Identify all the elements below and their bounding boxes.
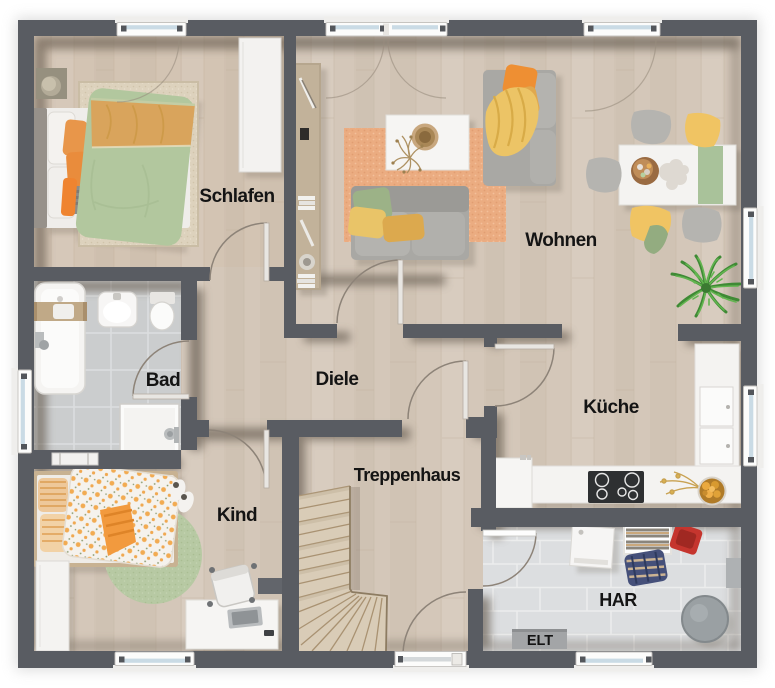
svg-text:Küche: Küche — [583, 397, 639, 418]
svg-text:HAR: HAR — [599, 590, 637, 610]
svg-text:Bad: Bad — [146, 370, 180, 391]
svg-text:ELT: ELT — [527, 633, 553, 649]
svg-text:Wohnen: Wohnen — [525, 230, 597, 251]
svg-text:Schlafen: Schlafen — [199, 186, 274, 207]
svg-text:Diele: Diele — [316, 369, 359, 390]
svg-text:Treppenhaus: Treppenhaus — [354, 465, 461, 485]
svg-text:Kind: Kind — [217, 505, 257, 526]
